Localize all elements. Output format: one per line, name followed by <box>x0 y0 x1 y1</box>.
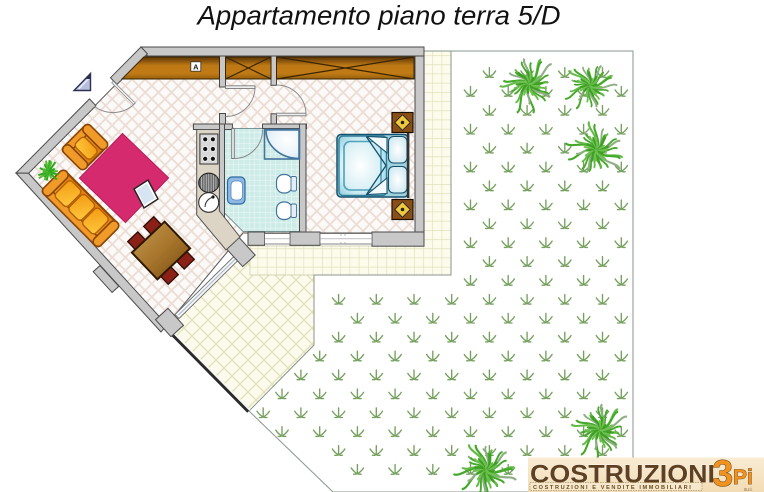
svg-text:COSTRUZIONI E VENDITE IMMOBILI: COSTRUZIONI E VENDITE IMMOBILIARI <box>533 485 692 491</box>
svg-text:Appartamento piano terra 5/D: Appartamento piano terra 5/D <box>195 1 560 31</box>
svg-text:3: 3 <box>713 453 734 492</box>
svg-text:Pi: Pi <box>733 466 753 489</box>
svg-text:S.r.l.: S.r.l. <box>744 487 753 492</box>
svg-text:A: A <box>193 62 199 71</box>
